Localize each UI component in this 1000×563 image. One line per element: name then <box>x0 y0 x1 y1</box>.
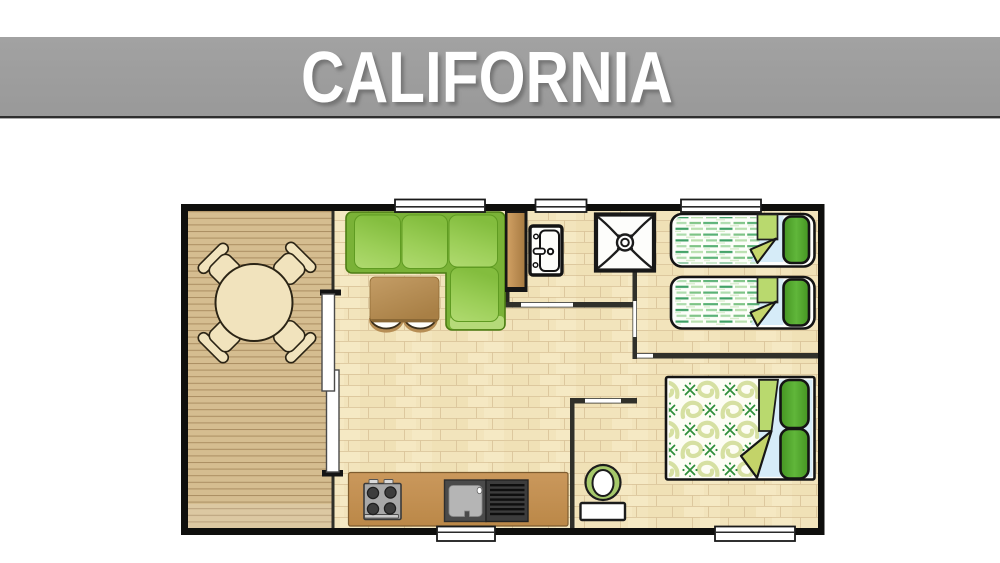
svg-text:CALIFORNIA: CALIFORNIA <box>301 38 673 118</box>
